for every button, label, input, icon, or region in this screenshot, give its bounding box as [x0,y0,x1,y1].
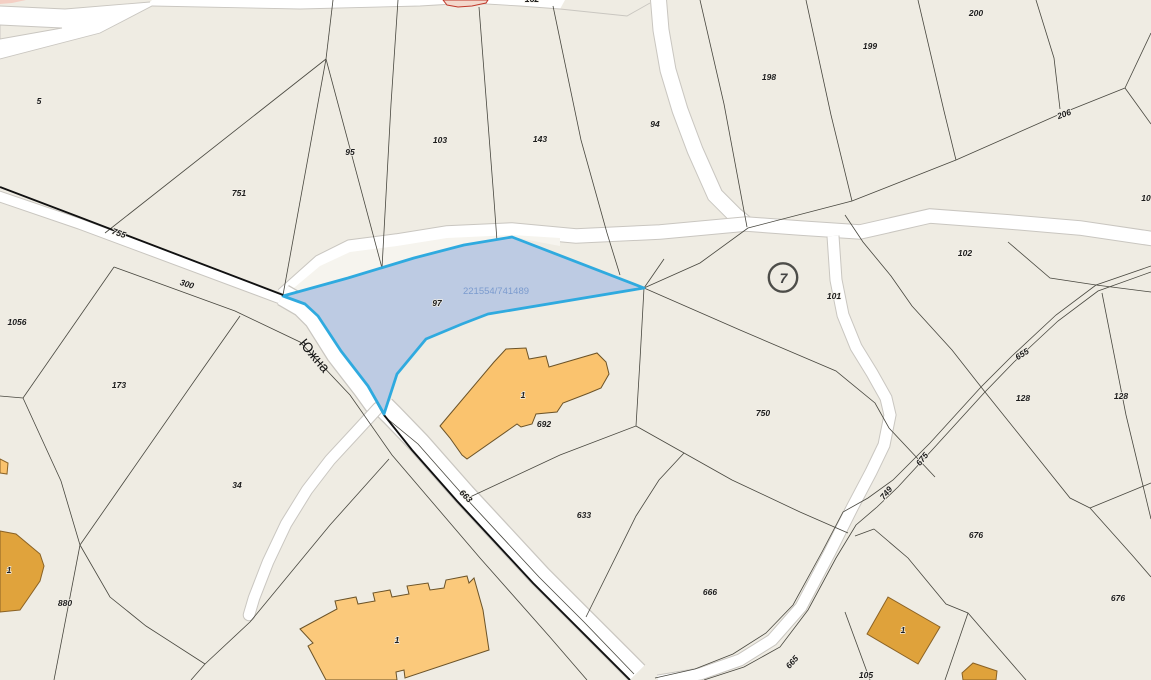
svg-text:128: 128 [1114,391,1128,401]
svg-text:1056: 1056 [8,317,27,327]
svg-text:751: 751 [232,188,246,198]
svg-text:5: 5 [37,96,42,106]
svg-text:1: 1 [7,565,12,575]
svg-text:143: 143 [533,134,547,144]
svg-text:880: 880 [58,598,72,608]
svg-text:95: 95 [345,147,355,157]
svg-text:1: 1 [521,390,526,400]
svg-text:199: 199 [863,41,877,51]
svg-text:97: 97 [432,298,443,308]
svg-text:1: 1 [395,635,400,645]
svg-text:7: 7 [780,270,789,286]
svg-text:103: 103 [433,135,447,145]
svg-text:128: 128 [1016,393,1030,403]
svg-text:173: 173 [112,380,126,390]
svg-text:750: 750 [756,408,770,418]
svg-text:692: 692 [537,419,551,429]
svg-text:200: 200 [968,8,983,18]
svg-text:666: 666 [703,587,717,597]
svg-text:676: 676 [1111,593,1125,603]
svg-text:221554/741489: 221554/741489 [463,286,529,297]
svg-text:1: 1 [901,625,906,635]
svg-text:34: 34 [232,480,242,490]
svg-text:94: 94 [650,119,660,129]
svg-text:633: 633 [577,510,591,520]
svg-text:10: 10 [1141,193,1151,203]
svg-text:101: 101 [827,291,841,301]
svg-text:102: 102 [958,248,972,258]
svg-text:676: 676 [969,530,983,540]
svg-text:198: 198 [762,72,776,82]
svg-text:162: 162 [525,0,539,4]
svg-text:105: 105 [859,670,873,680]
